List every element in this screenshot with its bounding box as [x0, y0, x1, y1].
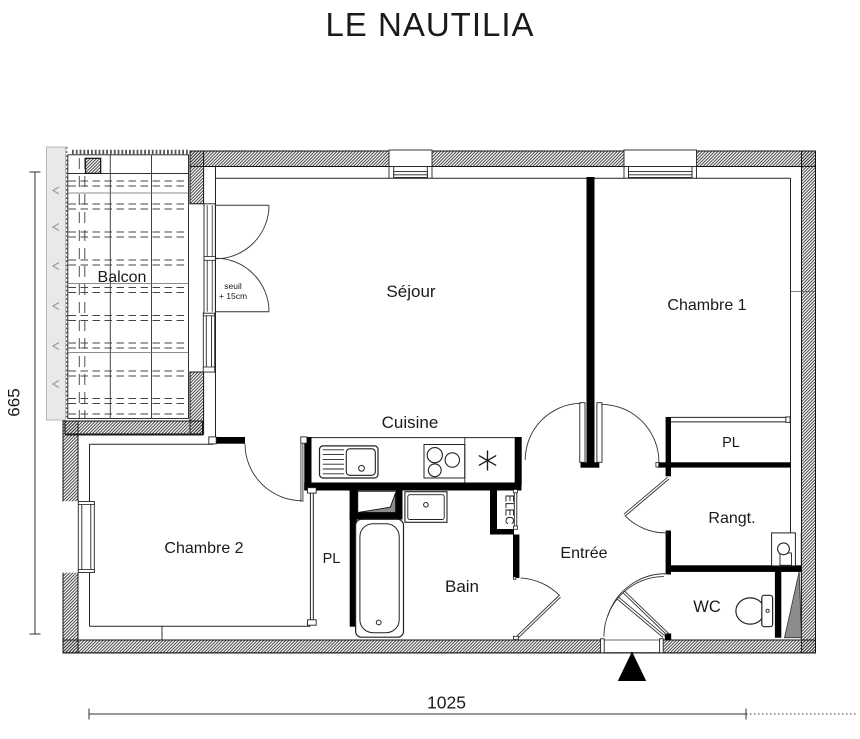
svg-text:ELEC: ELEC — [503, 494, 515, 524]
svg-text:seuil: seuil — [224, 281, 242, 291]
svg-text:LE NAUTILIA: LE NAUTILIA — [325, 6, 534, 43]
svg-text:Cuisine: Cuisine — [382, 413, 439, 432]
svg-text:+ 15cm: + 15cm — [219, 291, 247, 301]
svg-text:PL: PL — [323, 551, 341, 567]
svg-text:Entrée: Entrée — [560, 545, 607, 562]
svg-text:PL: PL — [722, 435, 740, 451]
svg-text:Balcon: Balcon — [98, 269, 147, 286]
svg-text:Chambre 1: Chambre 1 — [667, 297, 746, 314]
svg-text:Chambre 2: Chambre 2 — [164, 540, 243, 557]
svg-text:1025: 1025 — [427, 693, 466, 713]
svg-text:Bain: Bain — [445, 577, 479, 596]
svg-text:WC: WC — [693, 598, 721, 616]
svg-text:Rangt.: Rangt. — [708, 510, 755, 527]
svg-text:Séjour: Séjour — [386, 282, 435, 301]
svg-text:665: 665 — [5, 388, 24, 416]
